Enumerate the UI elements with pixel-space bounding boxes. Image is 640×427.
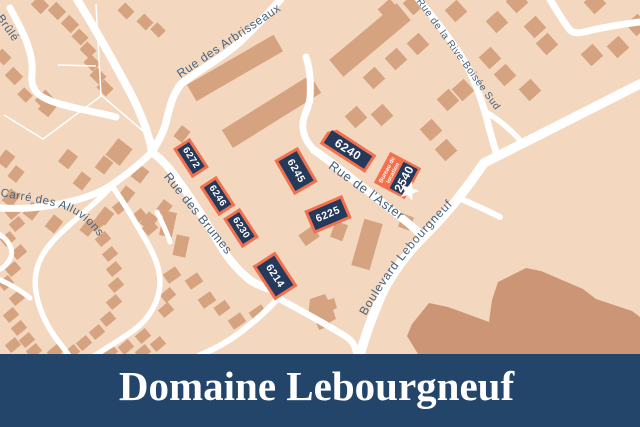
svg-text:Domaine Lebourgneuf: Domaine Lebourgneuf xyxy=(119,363,516,409)
